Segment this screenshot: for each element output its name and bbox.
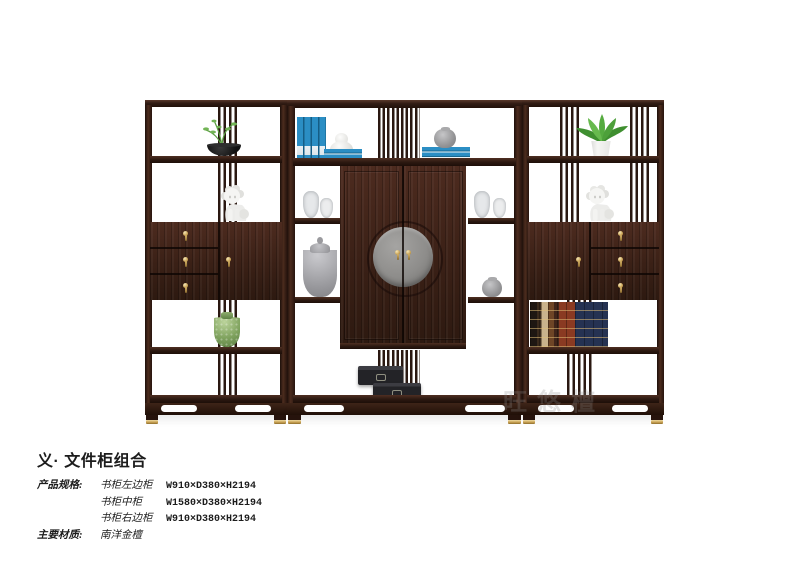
drawer-knob	[618, 231, 623, 236]
door-seam	[402, 166, 404, 345]
shelf-board	[527, 156, 659, 163]
door-knob	[406, 250, 411, 255]
drawer-and-door-chest	[150, 222, 282, 300]
spec-table: 产品规格: 书柜左边柜 W910×D380×H2194 书柜中柜 W1580×D…	[37, 478, 367, 543]
drawer-divider	[591, 247, 659, 249]
rail-cutout	[465, 405, 505, 412]
column-shelf	[295, 297, 340, 303]
material-value: 南洋金檀	[100, 528, 166, 544]
brass-foot-cap	[288, 420, 301, 424]
cabinet-combination-photo: 旺悠檀	[145, 98, 665, 438]
drawer-divider	[591, 273, 659, 275]
cornice	[287, 100, 522, 108]
product-info: 义· 文件柜组合 产品规格: 书柜左边柜 W910×D380×H2194 书柜中…	[37, 447, 367, 543]
blue-books-standing	[297, 117, 326, 158]
center-cabinet	[287, 98, 522, 438]
rail-cutout	[612, 405, 648, 412]
lion-figurine	[217, 183, 253, 222]
drawer-knob	[183, 231, 188, 236]
drawer-knob	[618, 257, 623, 262]
column-shelf	[468, 218, 514, 224]
blue-books-stack	[324, 149, 362, 158]
top-shelf	[293, 158, 516, 166]
door-knob	[576, 257, 581, 262]
base-rail	[287, 403, 522, 415]
lion-figurine	[582, 183, 618, 222]
drawer-knob	[183, 257, 188, 262]
base-rail	[145, 403, 287, 415]
antique-books-row	[530, 302, 608, 347]
frame-post	[287, 106, 295, 415]
door-divider	[589, 222, 591, 300]
material-row: 主要材质: 南洋金檀	[37, 528, 367, 544]
brass-foot-cap	[523, 420, 535, 424]
glass-vases	[301, 185, 335, 218]
shelf-board	[150, 156, 282, 163]
spec-row: 产品规格: 书柜左边柜 W910×D380×H2194	[37, 478, 367, 495]
spec-dimensions: W1580×D380×H2194	[166, 496, 367, 512]
spec-label: 产品规格:	[37, 478, 100, 494]
cabinet-bottom-edge	[340, 343, 466, 349]
drawer-divider	[150, 247, 218, 249]
frame-post	[514, 106, 522, 415]
shelf-board	[150, 347, 282, 354]
bottom-shelf	[150, 395, 282, 403]
brass-foot-cap	[651, 420, 663, 424]
slat-screen	[378, 108, 420, 158]
spec-item: 书柜左边柜	[100, 478, 166, 494]
brass-foot-cap	[146, 420, 158, 424]
brass-foot-cap	[274, 420, 286, 424]
brand-watermark: 旺悠檀	[503, 382, 605, 417]
cornice	[145, 100, 287, 107]
spec-item: 书柜右边柜	[100, 511, 166, 527]
catalog-page: 旺悠檀 义· 文件柜组合 产品规格: 书柜左边柜 W910×D380×H2194…	[0, 0, 800, 566]
column-shelf	[468, 297, 514, 303]
drawer-divider	[150, 273, 218, 275]
glass-vases	[472, 185, 508, 218]
spec-row: 书柜右边柜 W910×D380×H2194	[37, 511, 367, 528]
spec-item: 书柜中柜	[100, 495, 166, 511]
spec-row: 书柜中柜 W1580×D380×H2194	[37, 495, 367, 512]
shelf-board	[527, 347, 659, 354]
double-door-cabinet	[340, 166, 466, 345]
product-title: 义· 文件柜组合	[37, 447, 367, 471]
gray-ginger-jar	[303, 237, 337, 297]
spec-dimensions: W910×D380×H2194	[166, 479, 367, 495]
drawer-knob	[618, 283, 623, 288]
rail-cutout	[161, 405, 197, 412]
gray-jar	[434, 129, 456, 148]
celadon-vase	[214, 312, 240, 347]
rail-cutout	[235, 405, 271, 412]
rail-cutout	[304, 405, 344, 412]
door-divider	[218, 222, 220, 300]
door-knob	[226, 257, 231, 262]
door-knob	[395, 250, 400, 255]
spec-dimensions: W910×D380×H2194	[166, 512, 367, 528]
blue-books-stack	[422, 147, 470, 158]
material-label: 主要材质:	[37, 528, 100, 544]
left-bookcase	[145, 98, 287, 438]
small-gray-jar	[482, 279, 502, 297]
bottom-shelf	[293, 395, 516, 403]
column-shelf	[295, 218, 340, 224]
drawer-knob	[183, 283, 188, 288]
drawer-and-door-chest	[527, 222, 659, 300]
cornice	[522, 100, 664, 107]
brass-foot-cap	[508, 420, 521, 424]
slat-screen	[630, 107, 650, 222]
